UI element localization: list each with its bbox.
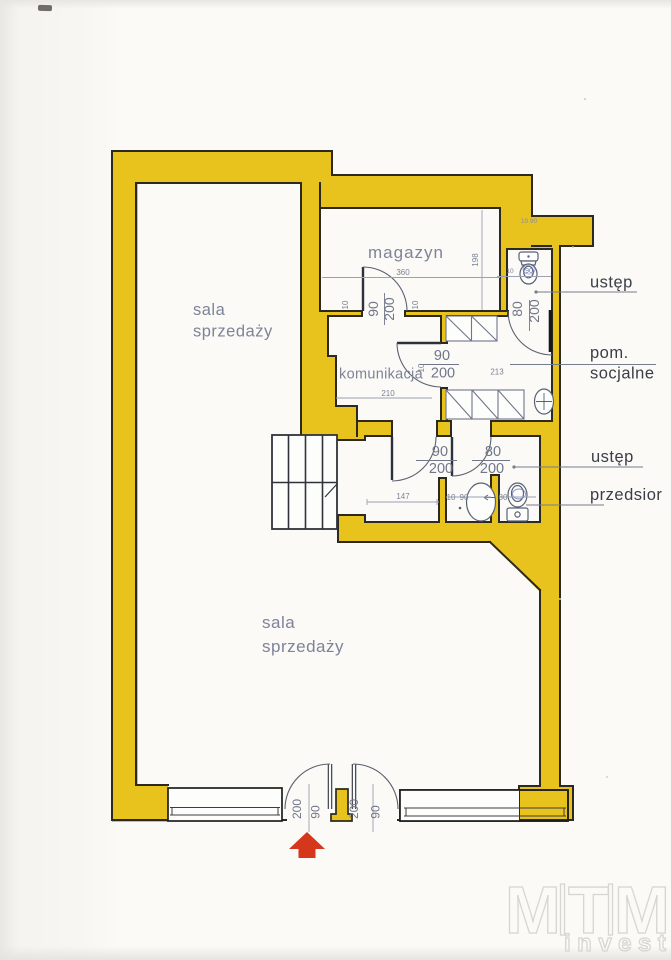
svg-text:invest: invest	[564, 930, 671, 957]
svg-text:198: 198	[471, 253, 480, 267]
svg-text:90: 90	[309, 805, 323, 819]
svg-text:213: 213	[490, 368, 504, 377]
svg-text:200: 200	[526, 299, 542, 323]
svg-text:10 90: 10 90	[521, 218, 538, 225]
svg-text:ustęp: ustęp	[591, 448, 634, 466]
svg-text:200: 200	[431, 366, 455, 382]
svg-text:przedsior: przedsior	[590, 486, 662, 504]
svg-text:200: 200	[480, 461, 504, 477]
svg-text:10: 10	[506, 268, 514, 275]
svg-text:ustęp: ustęp	[590, 274, 633, 292]
svg-text:socjalne: socjalne	[590, 365, 655, 383]
svg-text:pom.: pom.	[590, 344, 629, 362]
svg-text:10: 10	[411, 300, 420, 309]
svg-text:80: 80	[499, 493, 508, 502]
svg-text:200: 200	[347, 799, 361, 819]
svg-text:90: 90	[434, 348, 450, 364]
svg-text:90: 90	[525, 268, 533, 275]
svg-text:sprzedaży: sprzedaży	[262, 637, 344, 656]
svg-text:sala: sala	[262, 613, 295, 632]
svg-text:10: 10	[417, 363, 426, 372]
svg-text:90: 90	[365, 301, 381, 317]
svg-text:M: M	[505, 873, 561, 948]
svg-text:200: 200	[429, 461, 453, 477]
svg-text:80: 80	[509, 301, 525, 317]
svg-text:210: 210	[381, 389, 395, 398]
svg-text:90: 90	[432, 444, 448, 460]
svg-text:komunikacja: komunikacja	[339, 367, 424, 383]
svg-text:90: 90	[460, 493, 469, 502]
svg-text:90: 90	[369, 805, 383, 819]
svg-text:magazyn: magazyn	[368, 243, 444, 262]
svg-text:360: 360	[396, 268, 410, 277]
svg-text:10: 10	[447, 493, 456, 502]
svg-text:sprzedaży: sprzedaży	[193, 323, 273, 341]
svg-text:200: 200	[381, 297, 397, 321]
svg-text:80: 80	[485, 444, 501, 460]
svg-text:sala: sala	[193, 301, 226, 319]
svg-text:10: 10	[341, 300, 350, 309]
svg-text:200: 200	[290, 799, 304, 819]
svg-text:147: 147	[396, 492, 410, 501]
